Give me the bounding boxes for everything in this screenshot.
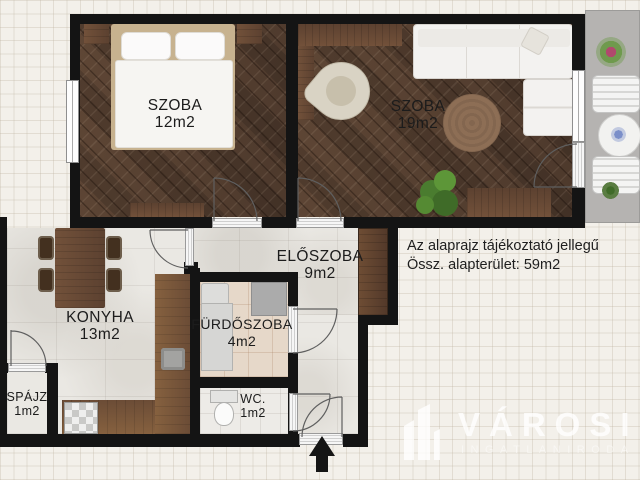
- room-label-pantry: SPÁJZ 1m2: [7, 390, 48, 418]
- kitchen-door-threshold: [185, 228, 194, 266]
- entrance-arrow-icon: [309, 436, 335, 472]
- plan-annotation: Az alaprajz tájékoztató jellegű Össz. al…: [407, 237, 599, 274]
- wall: [344, 217, 585, 228]
- watermark: VÁROSI INGATLANIRODA: [402, 400, 632, 462]
- sideboard: [467, 188, 551, 217]
- bed-pillow: [175, 32, 225, 60]
- kitchen-sink: [161, 348, 185, 370]
- sofa: [413, 24, 573, 79]
- washing-machine: [251, 282, 287, 316]
- wall: [262, 217, 296, 228]
- stove: [64, 402, 98, 434]
- bedroom-door-threshold: [212, 218, 262, 228]
- wall: [358, 315, 368, 447]
- room-label-livingroom: SZOBA 19m2: [391, 98, 446, 132]
- dining-table: [55, 228, 105, 308]
- nightstand: [84, 24, 109, 44]
- wall: [0, 363, 8, 373]
- wall: [200, 377, 298, 388]
- sofa-chaise: [523, 79, 575, 136]
- bed: [111, 24, 235, 150]
- nightstand: [237, 24, 262, 44]
- watermark-brand: VÁROSI: [458, 406, 639, 444]
- dining-chair: [38, 236, 54, 260]
- wall: [70, 217, 212, 228]
- room-name: KONYHA: [66, 309, 134, 326]
- room-name: WC.: [240, 392, 266, 406]
- room-name: SZOBA: [148, 97, 203, 114]
- livingroom-desk: [298, 24, 402, 46]
- room-label-kitchen: KONYHA 13m2: [66, 309, 134, 343]
- balcony-plant-icon: [596, 37, 626, 67]
- plan-disclaimer: Az alaprajz tájékoztató jellegű: [407, 237, 599, 256]
- balcony-small-plant-icon: [602, 182, 619, 199]
- wall: [286, 14, 298, 228]
- balcony-table-flowers-icon: [611, 127, 626, 142]
- plan-total-area: Össz. alapterület: 59m2: [407, 256, 599, 275]
- balcony-door-threshold: [572, 142, 585, 188]
- bedroom-dresser: [130, 203, 204, 217]
- room-label-bedroom: SZOBA 12m2: [148, 97, 203, 131]
- room-name: SZOBA: [391, 98, 446, 115]
- wall: [388, 228, 398, 325]
- room-area: 19m2: [391, 115, 446, 132]
- room-area: 9m2: [277, 265, 364, 282]
- floorplan-canvas: SZOBA 12m2 SZOBA 19m2 ELŐSZOBA 9m2 KONYH…: [0, 0, 640, 480]
- rug: [443, 94, 501, 152]
- room-name: FÜRDŐSZOBA: [191, 316, 292, 333]
- room-area: 4m2: [191, 333, 292, 350]
- room-name: SPÁJZ: [7, 390, 48, 404]
- bedroom-window: [66, 80, 79, 163]
- room-area: 13m2: [66, 326, 134, 343]
- room-label-bathroom: FÜRDŐSZOBA 4m2: [191, 316, 292, 350]
- buildings-icon: [402, 402, 442, 462]
- balcony-chair: [592, 75, 640, 113]
- bed-pillow: [121, 32, 171, 60]
- room-name: ELŐSZOBA: [277, 248, 364, 265]
- livingroom-window: [572, 70, 585, 142]
- wall: [0, 434, 300, 447]
- plant-icon: [416, 170, 462, 218]
- toilet: [210, 390, 238, 428]
- dining-chair: [106, 268, 122, 292]
- dining-chair: [38, 268, 54, 292]
- wall: [190, 268, 200, 447]
- dining-chair: [106, 236, 122, 260]
- bathroom-sink: [201, 283, 229, 305]
- room-area: 12m2: [148, 114, 203, 131]
- watermark-subtitle: INGATLANIRODA: [461, 444, 635, 456]
- wc-door-threshold: [289, 393, 298, 431]
- wall: [47, 363, 58, 447]
- room-label-hallway: ELŐSZOBA 9m2: [277, 248, 364, 282]
- room-label-wc: WC. 1m2: [240, 392, 266, 420]
- wall: [70, 14, 585, 24]
- room-area: 1m2: [240, 406, 266, 420]
- livingroom-door-threshold: [296, 218, 344, 228]
- room-area: 1m2: [7, 404, 48, 418]
- pantry-door-threshold: [8, 363, 46, 372]
